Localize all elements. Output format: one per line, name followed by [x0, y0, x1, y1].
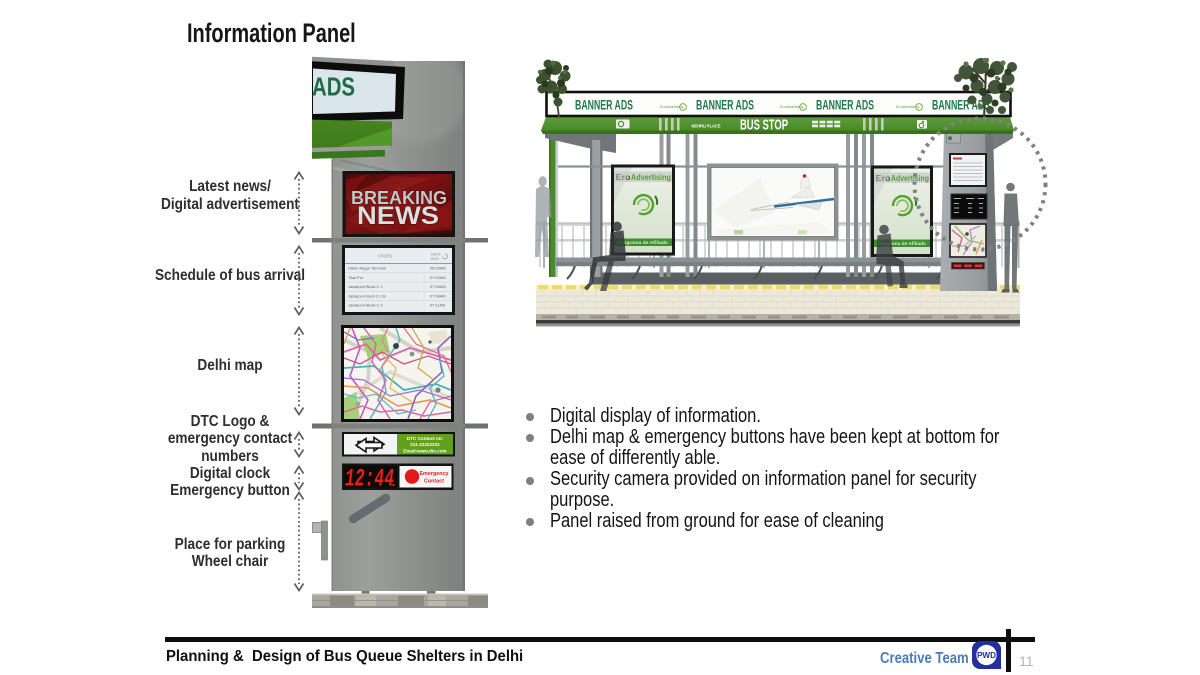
svg-text:STOPS: STOPS [378, 254, 392, 259]
svg-text:Janakpuri block C x B: Janakpuri block C x B [348, 293, 386, 298]
svg-text:07:11AM: 07:11AM [430, 303, 445, 308]
svg-text:Programa de Afiliado: Programa de Afiliado [618, 240, 668, 245]
svg-text:Advertising: Advertising [891, 174, 929, 183]
svg-text:Tilak Pul: Tilak Pul [348, 275, 363, 280]
svg-text:Emergency: Emergency [419, 471, 448, 477]
svg-text:12:44: 12:44 [345, 465, 394, 494]
svg-text:BUS: BUS [431, 257, 439, 261]
svg-text:07:02AM: 07:02AM [430, 275, 446, 280]
svg-text:011-22222222: 011-22222222 [410, 442, 440, 447]
svg-text:NEXT: NEXT [431, 253, 442, 257]
svg-text:07:08AM: 07:08AM [430, 293, 446, 298]
svg-text:Janakpuri Block C 1: Janakpuri Block C 1 [348, 284, 383, 289]
svg-text:Email:www.dtc.com: Email:www.dtc.com [403, 449, 446, 454]
svg-text:06:59AM: 06:59AM [430, 266, 446, 271]
svg-text:BANNER ADS: BANNER ADS [816, 98, 874, 113]
svg-text:Janakpuri Block C 3: Janakpuri Block C 3 [348, 303, 383, 308]
svg-text:PWD: PWD [977, 651, 996, 660]
svg-text:NEWS: NEWS [357, 202, 439, 230]
svg-text:DTC Contact no:: DTC Contact no: [407, 436, 444, 441]
svg-text:Advertising: Advertising [631, 173, 671, 182]
svg-text:BANNER ADS: BANNER ADS [696, 98, 754, 113]
svg-text:ADS: ADS [312, 74, 355, 102]
svg-text:BUS STOP: BUS STOP [740, 117, 788, 133]
svg-text:07:05AM: 07:05AM [430, 284, 446, 289]
svg-text:Uttam Nagar Terminal: Uttam Nagar Terminal [348, 266, 386, 271]
svg-text:BANNER ADS: BANNER ADS [575, 98, 633, 113]
svg-text:Contact: Contact [424, 479, 444, 485]
svg-text:NEHRU PLACE: NEHRU PLACE [692, 123, 721, 128]
